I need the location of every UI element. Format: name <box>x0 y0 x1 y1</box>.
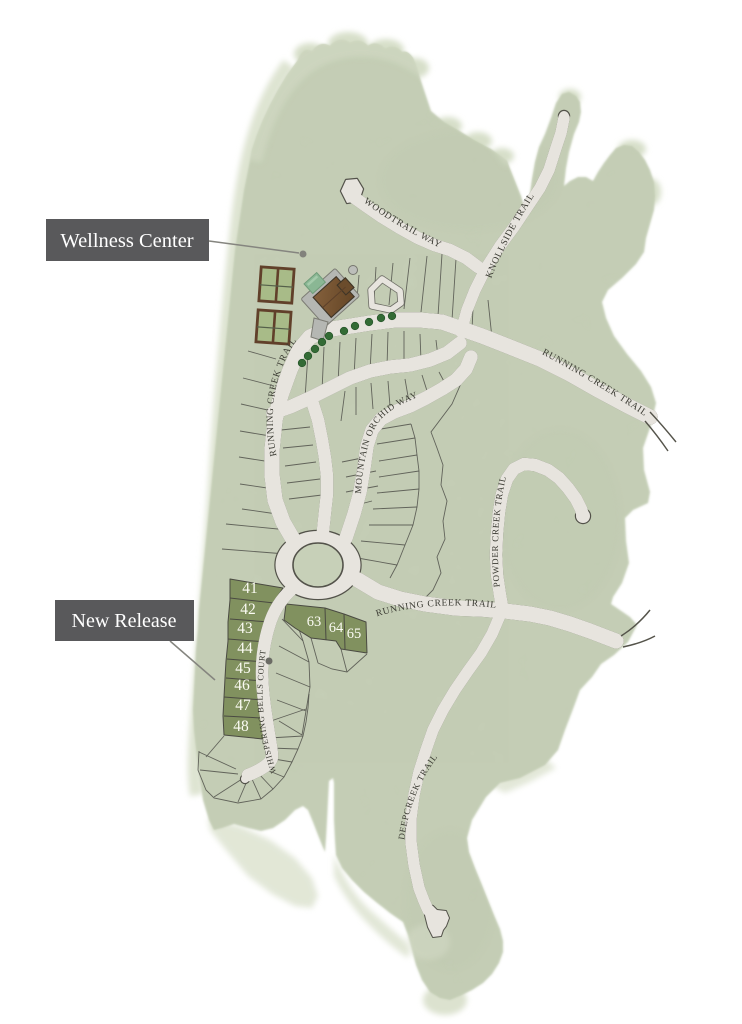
svg-text:45: 45 <box>235 660 251 677</box>
svg-text:44: 44 <box>237 640 253 657</box>
svg-text:63: 63 <box>307 614 322 630</box>
svg-text:48: 48 <box>233 718 249 735</box>
svg-text:46: 46 <box>234 677 250 694</box>
svg-text:New Release: New Release <box>72 610 177 632</box>
svg-text:64: 64 <box>329 620 344 636</box>
svg-text:Wellness Center: Wellness Center <box>60 230 193 252</box>
svg-text:43: 43 <box>237 620 253 637</box>
svg-text:47: 47 <box>235 697 251 714</box>
svg-text:41: 41 <box>242 580 258 597</box>
svg-text:65: 65 <box>347 626 362 642</box>
svg-text:42: 42 <box>240 601 256 618</box>
